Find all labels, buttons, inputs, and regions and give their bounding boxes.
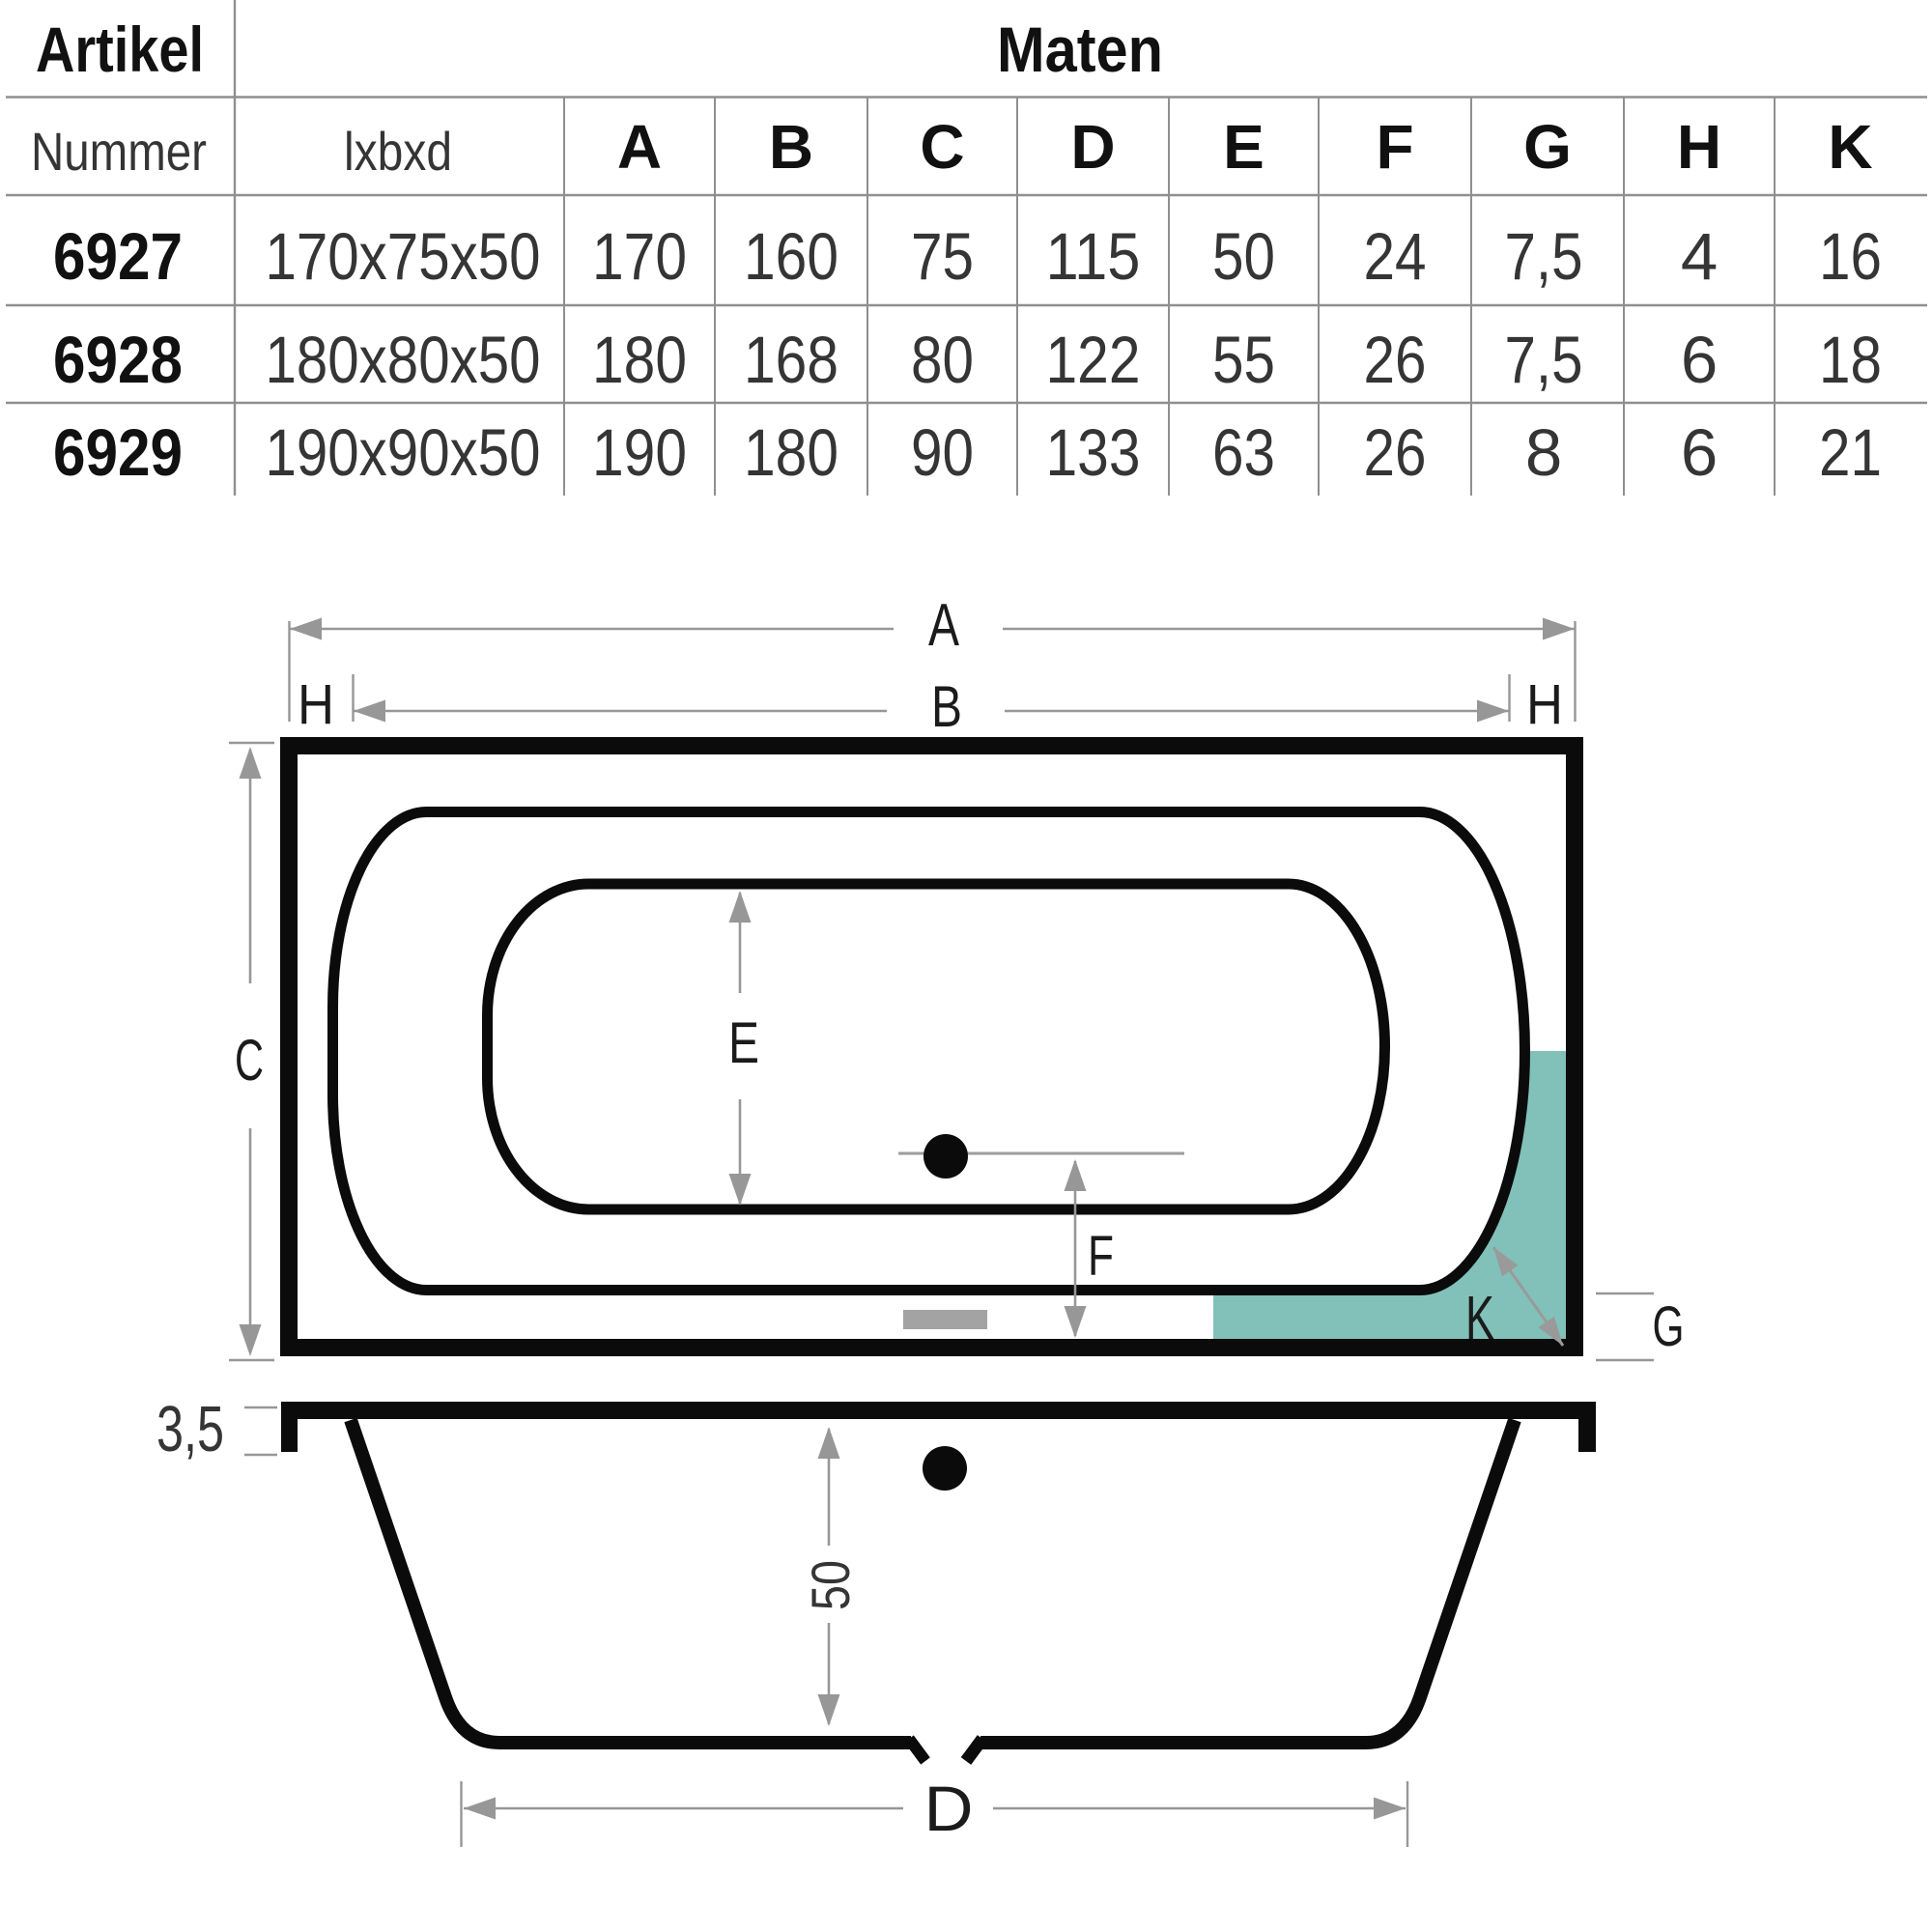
svg-text:A: A (928, 592, 959, 659)
svg-text:G: G (1653, 1295, 1685, 1358)
svg-text:F: F (1376, 112, 1413, 182)
svg-text:6: 6 (1681, 323, 1718, 397)
svg-text:7,5: 7,5 (1505, 323, 1583, 397)
svg-text:Nummer: Nummer (31, 121, 207, 182)
svg-text:190: 190 (592, 415, 687, 490)
svg-text:F: F (1088, 1225, 1114, 1288)
svg-text:63: 63 (1212, 415, 1275, 490)
svg-text:lxbxd: lxbxd (344, 121, 452, 182)
svg-text:H: H (298, 673, 334, 736)
svg-text:55: 55 (1212, 323, 1275, 397)
svg-text:18: 18 (1819, 323, 1882, 397)
svg-text:21: 21 (1819, 415, 1882, 490)
svg-text:50: 50 (1212, 219, 1275, 294)
svg-text:190x90x50: 190x90x50 (266, 415, 541, 490)
svg-text:H: H (1526, 673, 1563, 736)
svg-text:C: C (235, 1028, 264, 1093)
svg-text:170x75x50: 170x75x50 (266, 219, 541, 294)
svg-text:7,5: 7,5 (1505, 219, 1583, 294)
svg-text:133: 133 (1046, 415, 1141, 490)
svg-text:80: 80 (911, 323, 974, 397)
svg-text:6928: 6928 (53, 323, 183, 397)
svg-text:E: E (728, 1010, 759, 1075)
svg-text:Maten: Maten (997, 14, 1163, 85)
svg-text:26: 26 (1364, 415, 1427, 490)
svg-text:A: A (617, 112, 662, 182)
svg-text:B: B (769, 112, 813, 182)
svg-text:115: 115 (1046, 219, 1141, 294)
svg-text:168: 168 (744, 323, 838, 397)
svg-text:K: K (1465, 1283, 1494, 1352)
svg-text:180: 180 (592, 323, 687, 397)
svg-text:4: 4 (1681, 219, 1718, 294)
svg-text:6: 6 (1681, 415, 1718, 490)
svg-text:3,5: 3,5 (156, 1393, 224, 1465)
svg-text:D: D (1070, 112, 1115, 182)
svg-text:50: 50 (800, 1560, 861, 1610)
svg-text:180: 180 (744, 415, 838, 490)
svg-text:122: 122 (1046, 323, 1141, 397)
svg-text:C: C (920, 112, 964, 182)
svg-text:180x80x50: 180x80x50 (266, 323, 541, 397)
svg-text:8: 8 (1525, 415, 1562, 490)
svg-text:B: B (931, 674, 962, 739)
svg-text:170: 170 (592, 219, 687, 294)
svg-text:K: K (1828, 112, 1872, 182)
svg-text:90: 90 (911, 415, 974, 490)
svg-text:26: 26 (1364, 323, 1427, 397)
svg-text:G: G (1523, 112, 1572, 182)
svg-text:6929: 6929 (53, 415, 183, 490)
svg-text:6927: 6927 (53, 219, 183, 294)
svg-text:24: 24 (1364, 219, 1427, 294)
svg-text:Artikel: Artikel (36, 14, 204, 85)
svg-text:160: 160 (744, 219, 838, 294)
svg-text:H: H (1677, 112, 1721, 182)
svg-text:E: E (1223, 112, 1264, 182)
svg-text:D: D (924, 1773, 974, 1844)
svg-text:75: 75 (911, 219, 974, 294)
svg-text:16: 16 (1819, 219, 1882, 294)
